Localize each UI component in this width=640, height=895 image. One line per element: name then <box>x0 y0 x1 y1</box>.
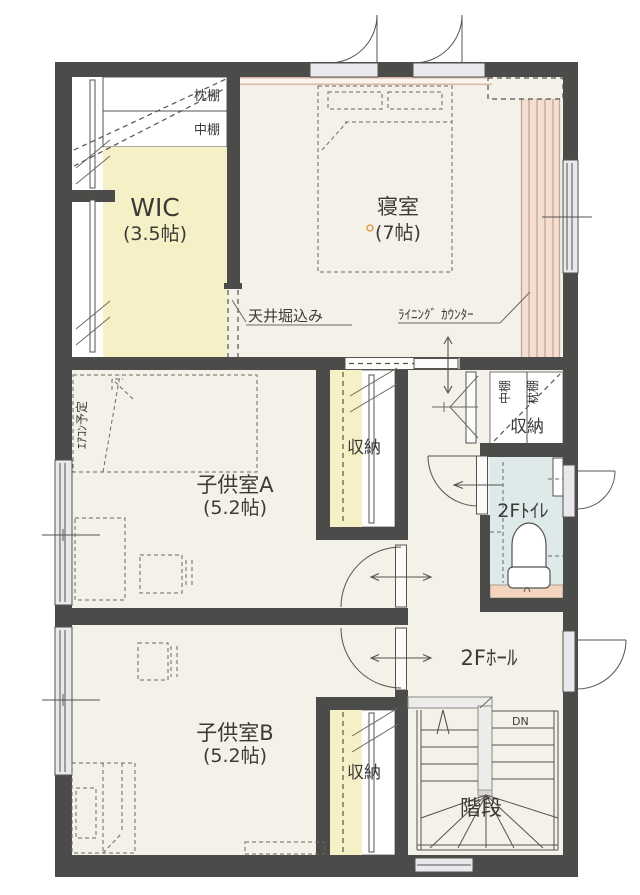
label-lining-counter: ﾗｲﾆﾝｸﾞ ｶｳﾝﾀｰ <box>398 308 474 323</box>
label-closet-b: 収納 <box>347 763 381 783</box>
label-wic-size: (3.5帖) <box>123 223 187 245</box>
label-closet-a: 収納 <box>347 438 381 458</box>
label-bedroom-name: 寝室 <box>377 195 419 219</box>
label-bedroom-size: (7帖) <box>375 222 421 244</box>
wic-hanger-pipe-2 <box>90 200 95 352</box>
label-child-b-size: (5.2帖) <box>203 745 267 767</box>
label-toilet: 2Fﾄｲﾚ <box>497 500 549 522</box>
label-aircon-planned: ｴｱｺﾝ予定 <box>74 401 89 449</box>
label-child-a-size: (5.2帖) <box>203 497 267 519</box>
label-hall: 2Fﾎｰﾙ <box>461 646 518 670</box>
hall-window <box>563 631 575 692</box>
child-rooms-divider-wall <box>55 608 408 625</box>
bedroom-top-window-1 <box>310 63 378 77</box>
label-ceiling-recess: 天井堀込み <box>248 307 323 325</box>
label-middle-shelf: 中棚 <box>194 123 220 138</box>
label-child-a-name: 子供室A <box>196 473 274 497</box>
label-wic-name: WIC <box>130 193 180 222</box>
label-pillow-shelf: 枕棚 <box>194 89 220 104</box>
label-stairs: 階段 <box>460 796 502 820</box>
label-closet-middle-shelf: 中棚 <box>497 380 512 404</box>
floor-plan-page: 枕棚 中棚 WIC (3.5帖) 寝室 (7帖) 天井堀込み ﾗｲﾆﾝｸﾞ ｶｳ… <box>0 0 640 895</box>
toilet-fixture <box>508 523 550 592</box>
label-dn: DN <box>512 715 529 728</box>
label-closet-hall: 収納 <box>510 417 544 437</box>
bedroom-curtain-band <box>240 77 492 85</box>
label-child-b-name: 子供室B <box>196 721 273 745</box>
floor-plan: 枕棚 中棚 WIC (3.5帖) 寝室 (7帖) 天井堀込み ﾗｲﾆﾝｸﾞ ｶｳ… <box>0 0 640 895</box>
label-closet-pillow-shelf: 枕棚 <box>525 380 540 404</box>
lining-counter <box>521 99 560 357</box>
toilet-window <box>563 465 575 517</box>
bedroom-top-window-2 <box>413 63 485 77</box>
